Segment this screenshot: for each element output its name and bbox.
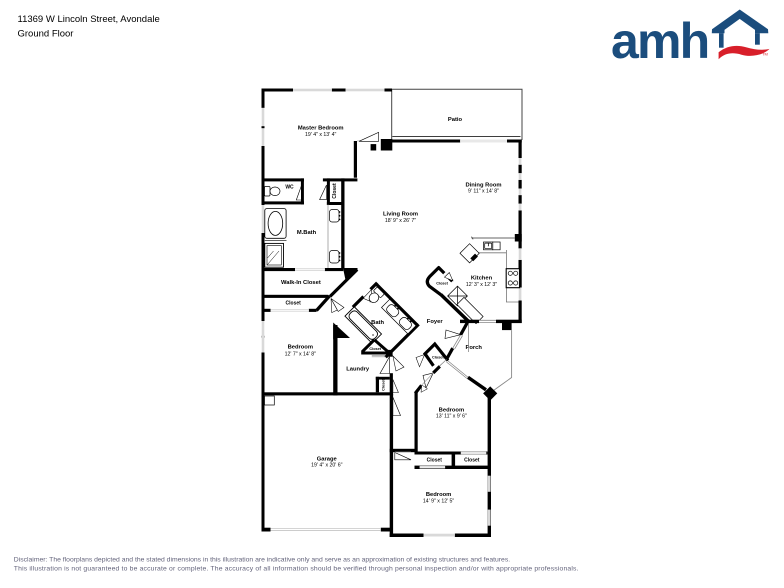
svg-text:WC: WC [285,185,294,191]
svg-text:Closet: Closet [436,281,448,285]
svg-text:Kitchen: Kitchen [471,276,493,282]
svg-text:amh: amh [611,13,708,69]
svg-text:13' 11" x 9' 6": 13' 11" x 9' 6" [436,414,467,420]
svg-text:Closet: Closet [464,458,480,464]
svg-text:Bedroom: Bedroom [426,492,451,498]
svg-text:M.Bath: M.Bath [297,230,317,236]
svg-text:TM: TM [762,52,768,57]
svg-text:19' 4" x 20' 6": 19' 4" x 20' 6" [311,463,342,469]
svg-text:Bedroom: Bedroom [439,408,464,414]
svg-text:19' 4" x 13' 4": 19' 4" x 13' 4" [305,132,336,138]
svg-text:Porch: Porch [465,345,482,351]
svg-text:Garage: Garage [317,456,338,462]
svg-text:Laundry: Laundry [346,366,370,372]
svg-text:Closet: Closet [369,347,381,351]
svg-text:Closet: Closet [381,378,385,390]
svg-text:18' 9" x 26' 7": 18' 9" x 26' 7" [385,218,416,224]
svg-text:Living Room: Living Room [383,211,418,217]
svg-text:Ground Floor: Ground Floor [18,29,74,40]
svg-text:Disclaimer: The floorplans dep: Disclaimer: The floorplans depicted and … [14,557,510,564]
svg-text:12' 3" x 12' 3": 12' 3" x 12' 3" [466,282,497,288]
svg-text:Closet: Closet [427,458,443,464]
svg-text:This illustration is not guara: This illustration is not guaranteed to b… [14,565,579,572]
svg-text:12' 7" x 14' 8": 12' 7" x 14' 8" [285,351,316,357]
svg-text:Bath: Bath [371,320,384,326]
svg-text:11369 W Lincoln Street, Avonda: 11369 W Lincoln Street, Avondale [18,14,160,25]
svg-text:Closet: Closet [286,300,302,306]
svg-text:Patio: Patio [448,117,463,123]
svg-text:Foyer: Foyer [427,319,444,325]
svg-text:Walk-In Closet: Walk-In Closet [281,280,321,286]
svg-text:Closet: Closet [332,183,338,199]
svg-text:Bedroom: Bedroom [288,345,313,351]
svg-text:Master Bedroom: Master Bedroom [298,125,344,131]
svg-text:9' 11" x 14' 8": 9' 11" x 14' 8" [468,188,499,194]
svg-text:14' 9" x 12' 5": 14' 9" x 12' 5" [423,498,454,504]
svg-text:Closet: Closet [432,355,444,359]
